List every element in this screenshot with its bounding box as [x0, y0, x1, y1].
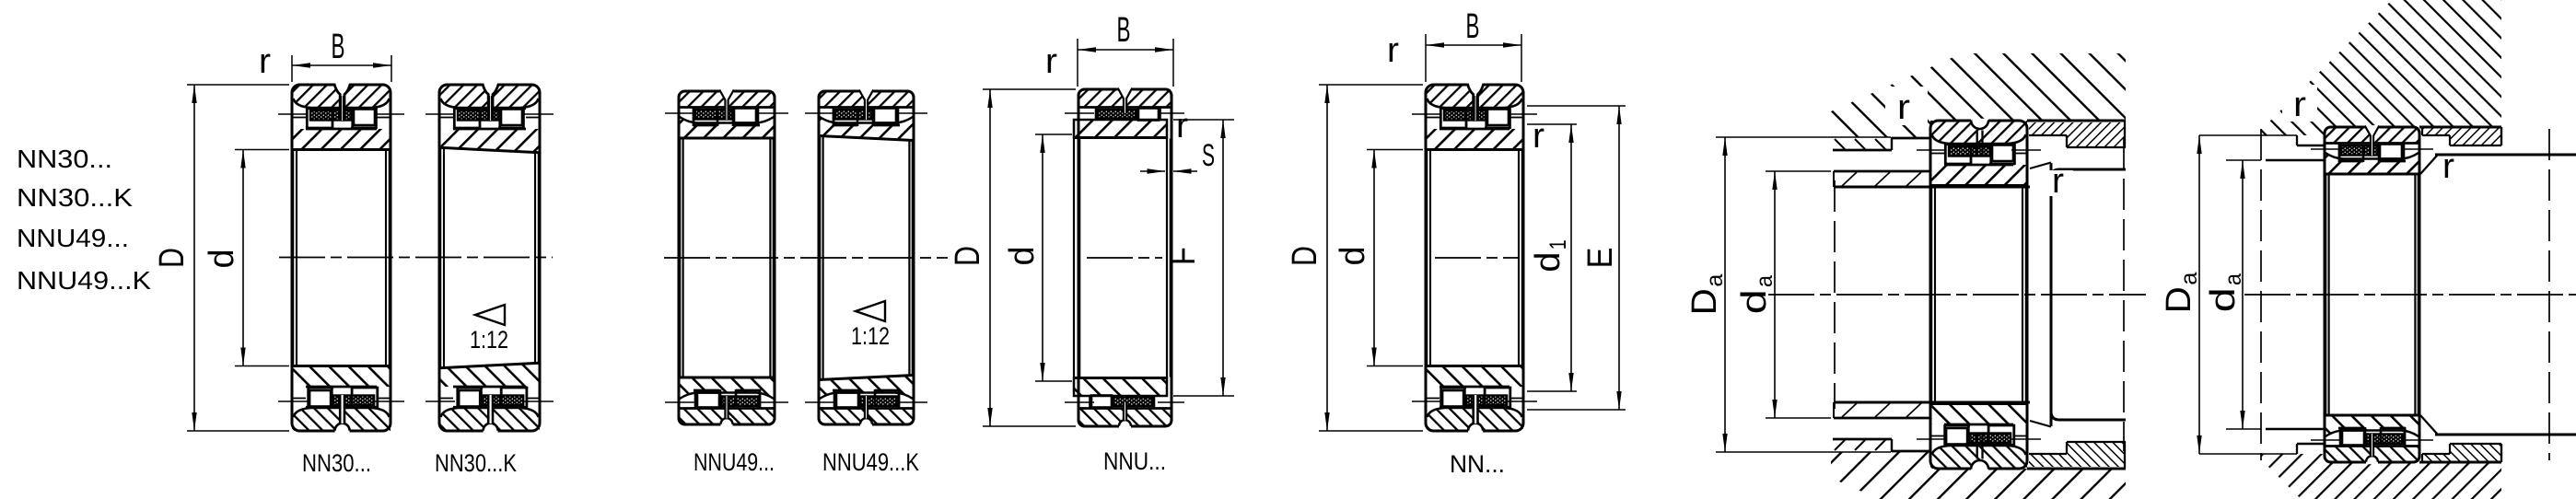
svg-text:r: r	[1897, 88, 1910, 127]
svg-text:r: r	[2052, 162, 2064, 201]
svg-text:a: a	[1752, 275, 1778, 287]
svg-text:d: d	[1003, 247, 1042, 266]
svg-text:r: r	[2442, 147, 2454, 186]
svg-text:B: B	[1466, 7, 1480, 46]
svg-text:B: B	[332, 28, 345, 66]
svg-text:NNU49...K: NNU49...K	[17, 266, 151, 295]
svg-text:1:12: 1:12	[851, 322, 890, 350]
svg-text:NNU49...: NNU49...	[17, 224, 129, 252]
svg-text:NN30...K: NN30...K	[17, 183, 133, 212]
svg-text:r: r	[1387, 31, 1399, 70]
svg-text:r: r	[2293, 86, 2306, 124]
svg-text:NN30...: NN30...	[302, 449, 371, 477]
svg-text:a: a	[2176, 273, 2202, 285]
svg-text:D: D	[153, 248, 192, 268]
svg-text:NNU...: NNU...	[1103, 447, 1166, 475]
svg-text:d: d	[2204, 287, 2243, 312]
svg-text:D: D	[1286, 246, 1324, 266]
svg-text:B: B	[1117, 11, 1131, 50]
svg-text:NNU49...K: NNU49...K	[822, 448, 919, 476]
svg-text:E: E	[1581, 248, 1620, 269]
svg-text:NN...: NN...	[1450, 450, 1505, 478]
svg-text:d: d	[1735, 289, 1774, 314]
svg-text:NN30...: NN30...	[17, 145, 112, 173]
svg-text:a: a	[1702, 274, 1728, 287]
svg-text:d: d	[1529, 252, 1568, 273]
svg-text:d: d	[1334, 247, 1372, 266]
svg-text:S: S	[1202, 138, 1215, 173]
svg-text:r: r	[1176, 107, 1188, 145]
svg-text:r: r	[1533, 117, 1544, 156]
svg-text:D: D	[2160, 286, 2198, 313]
svg-text:D: D	[949, 246, 987, 266]
svg-text:NNU49...: NNU49...	[694, 448, 775, 476]
svg-text:1:12: 1:12	[470, 326, 508, 354]
svg-text:a: a	[2220, 273, 2246, 285]
svg-text:r: r	[1045, 42, 1057, 81]
svg-text:d: d	[203, 249, 241, 269]
svg-text:F: F	[1164, 247, 1203, 265]
svg-text:NN30...K: NN30...K	[435, 449, 517, 477]
svg-text:1: 1	[1545, 239, 1571, 249]
svg-text:D: D	[1685, 288, 1724, 315]
svg-text:r: r	[259, 42, 271, 81]
